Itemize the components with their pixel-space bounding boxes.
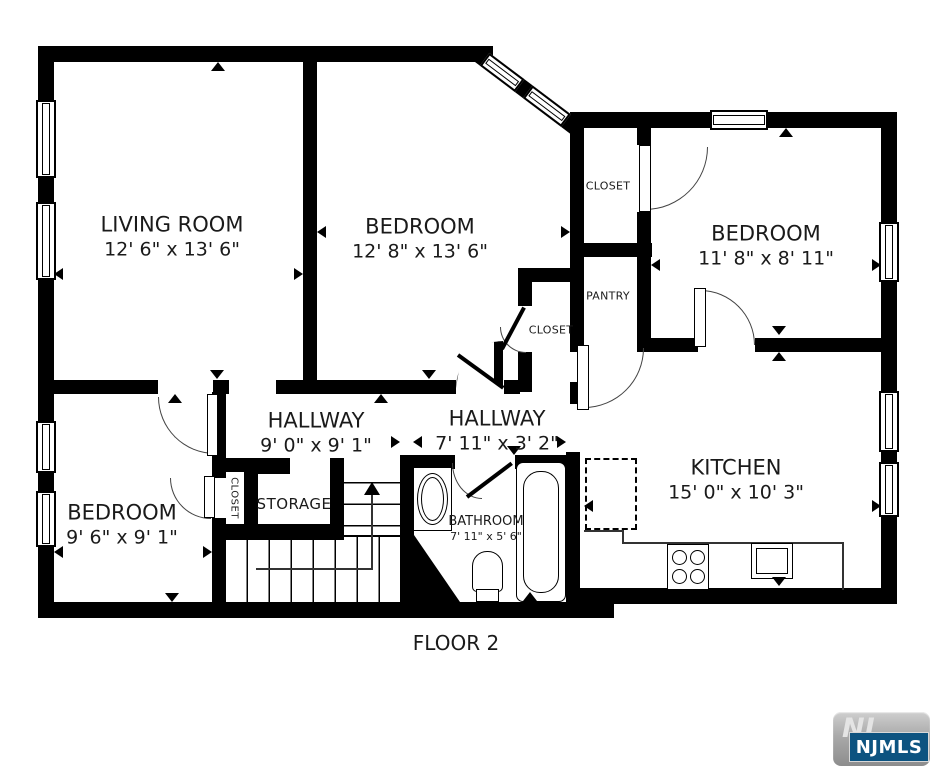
- toilet-tank-icon: [476, 589, 499, 602]
- window: [879, 222, 899, 282]
- room-label-bedroom-right: BEDROOM 11' 8" x 8' 11": [698, 221, 834, 272]
- room-dimensions: 9' 0" x 9' 1": [260, 434, 372, 459]
- wall-storage-right: [330, 458, 344, 540]
- wall-bathroom-diagonal: [414, 535, 460, 602]
- door-leaf: [204, 476, 215, 518]
- room-dimensions: 12' 8" x 13' 6": [352, 240, 488, 265]
- outer-wall-bottom-left: [38, 602, 614, 618]
- wall-segment: [38, 380, 158, 394]
- room-label-bathroom: BATHROOM 7' 11" x 5' 6": [448, 514, 523, 544]
- kitchen-sink-icon: [751, 543, 793, 579]
- counter-edge: [622, 530, 624, 544]
- stove-icon: [667, 544, 709, 590]
- room-name: BATHROOM: [448, 514, 523, 530]
- counter-edge: [622, 542, 843, 544]
- floor-plan: LIVING ROOM 12' 6" x 13' 6" BEDROOM 12' …: [0, 0, 937, 768]
- door-arc: [645, 147, 708, 210]
- dimension-arrow-right: [872, 500, 881, 512]
- room-label-closet-lower-left: CLOSET: [229, 477, 240, 519]
- room-name: LIVING ROOM: [101, 212, 244, 238]
- window: [879, 391, 899, 452]
- outer-wall-top-left: [38, 46, 493, 62]
- dimension-arrow-up: [523, 592, 537, 601]
- counter-edge: [842, 542, 844, 590]
- dimension-arrow-left: [54, 546, 63, 558]
- door-arc: [584, 348, 644, 408]
- window: [36, 100, 56, 178]
- bathtub-basin: [523, 471, 559, 593]
- door-leaf: [207, 394, 218, 456]
- room-label-hallway-east: HALLWAY 7' 11" x 3' 2": [435, 406, 559, 457]
- wall-living-bedroom: [303, 46, 317, 392]
- toilet-bowl-icon: [472, 551, 503, 592]
- dimension-arrow-up: [211, 62, 225, 71]
- room-name: HALLWAY: [260, 408, 372, 434]
- dimension-arrow-left: [54, 268, 63, 280]
- stove-burner-icon: [672, 550, 687, 565]
- dimension-arrow-left: [651, 259, 660, 271]
- outer-wall-bottom-right: [576, 588, 897, 604]
- dashed-appliance-icon: [585, 458, 637, 530]
- room-dimensions: 11' 8" x 8' 11": [698, 247, 834, 272]
- floor-caption: FLOOR 2: [413, 631, 499, 655]
- bathroom-sink-basin: [421, 477, 444, 521]
- room-dimensions: 7' 11" x 5' 6": [448, 530, 523, 544]
- wall-pantry-right-lower: [637, 212, 651, 352]
- wall-pantry-left: [570, 128, 584, 352]
- room-label-hallway-west: HALLWAY 9' 0" x 9' 1": [260, 408, 372, 459]
- door-leaf: [639, 145, 651, 212]
- dimension-arrow-left: [317, 226, 326, 238]
- room-dimensions: 9' 6" x 9' 1": [66, 526, 178, 551]
- room-name: BEDROOM: [66, 500, 178, 526]
- dimension-arrow-down: [210, 370, 224, 379]
- dimension-arrow-up: [772, 352, 786, 361]
- wall-pantry-right-upper: [637, 128, 651, 145]
- wall-kitchen-top-right: [755, 338, 897, 352]
- dimension-arrow-down: [772, 577, 786, 586]
- room-label-closet-mid: CLOSET: [529, 324, 574, 337]
- outer-wall-diagonal: [473, 48, 584, 137]
- dimension-arrow-right: [872, 259, 881, 271]
- stair-direction-line: [256, 568, 373, 570]
- window: [523, 85, 571, 127]
- room-dimensions: 12' 6" x 13' 6": [101, 238, 244, 263]
- dimension-arrow-right: [294, 268, 303, 280]
- window: [710, 110, 768, 130]
- door-arc: [700, 290, 755, 345]
- room-name: HALLWAY: [435, 406, 559, 432]
- wall-storage-top: [258, 458, 290, 474]
- room-label-closet-upper-right: CLOSET: [586, 180, 631, 193]
- wall-bathroom-left: [400, 455, 414, 602]
- outer-wall-right: [881, 112, 897, 604]
- room-label-bedroom-top: BEDROOM 12' 8" x 13' 6": [352, 214, 488, 265]
- stove-burner-icon: [690, 550, 705, 565]
- njmls-logo: NJ NJMLS: [833, 712, 930, 766]
- window: [36, 491, 56, 547]
- dimension-arrow-left: [584, 500, 593, 512]
- room-label-kitchen: KITCHEN 15' 0" x 10' 3": [668, 455, 804, 506]
- window: [879, 462, 899, 517]
- door-leaf: [577, 345, 589, 410]
- room-dimensions: 7' 11" x 3' 2": [435, 432, 559, 457]
- window: [36, 421, 56, 473]
- dimension-arrow-right: [391, 436, 400, 448]
- room-dimensions: 15' 0" x 10' 3": [668, 481, 804, 506]
- kitchen-sink-basin: [756, 548, 788, 574]
- stove-burner-icon: [672, 569, 687, 584]
- bathroom-sink-icon: [417, 473, 448, 525]
- stair-up-arrow: [364, 482, 380, 495]
- window: [36, 202, 56, 280]
- room-label-bedroom-lower: BEDROOM 9' 6" x 9' 1": [66, 500, 178, 551]
- dimension-arrow-left: [413, 436, 422, 448]
- room-label-pantry: PANTRY: [586, 290, 630, 303]
- njmls-banner: NJMLS: [849, 732, 929, 762]
- dimension-arrow-up: [779, 128, 793, 137]
- stove-burner-icon: [690, 569, 705, 584]
- wall-kitchen-top-left: [637, 338, 698, 352]
- room-label-storage: STORAGE: [257, 495, 332, 513]
- dimension-arrow-up: [168, 394, 182, 403]
- wall-closet-mid-left-lower: [518, 352, 532, 392]
- dimension-arrow-down: [165, 593, 179, 602]
- room-name: KITCHEN: [668, 455, 804, 481]
- dimension-arrow-down: [422, 370, 436, 379]
- room-name: BEDROOM: [698, 221, 834, 247]
- stair-direction-line: [371, 494, 373, 570]
- wall-segment: [276, 380, 456, 394]
- counter-edge: [584, 530, 624, 532]
- dimension-arrow-up: [374, 394, 388, 403]
- dimension-arrow-right: [203, 546, 212, 558]
- door-leaf: [694, 288, 706, 347]
- dimension-arrow-down: [772, 326, 786, 335]
- room-name: BEDROOM: [352, 214, 488, 240]
- wall-bathroom-right: [566, 452, 580, 602]
- dimension-arrow-right: [561, 226, 570, 238]
- window: [480, 53, 525, 92]
- room-label-living-room: LIVING ROOM 12' 6" x 13' 6": [101, 212, 244, 263]
